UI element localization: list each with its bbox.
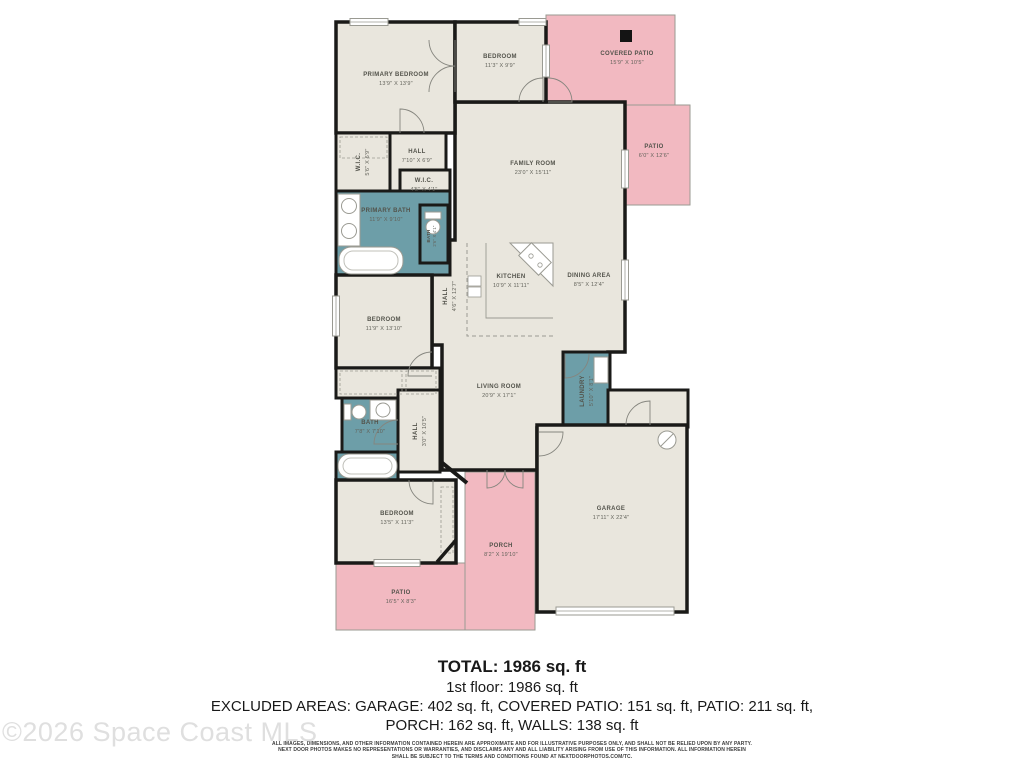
floorplan-page: COVERED PATIO15'9" X 10'5"PATIO6'0" X 12…	[0, 0, 1024, 768]
room-patio-2	[336, 563, 465, 630]
svg-text:8'2" X 19'10": 8'2" X 19'10"	[484, 552, 518, 558]
svg-text:23'0" X 15'11": 23'0" X 15'11"	[515, 170, 552, 176]
svg-text:7'8" X 7'10": 7'8" X 7'10"	[355, 429, 385, 435]
watermark: ©2026 Space Coast MLS	[2, 717, 318, 748]
svg-text:13'5" X 11'3": 13'5" X 11'3"	[380, 520, 413, 526]
svg-text:GARAGE: GARAGE	[597, 506, 625, 512]
svg-text:11'3" X 9'9": 11'3" X 9'9"	[485, 63, 515, 69]
floorplan-svg: COVERED PATIO15'9" X 10'5"PATIO6'0" X 12…	[0, 0, 1024, 768]
room-hall-2	[398, 390, 440, 472]
first-floor-area: 1st floor: 1986 sq. ft	[0, 679, 1024, 696]
total-area: TOTAL: 1986 sq. ft	[0, 657, 1024, 677]
svg-text:6'0" X 12'6": 6'0" X 12'6"	[639, 153, 669, 159]
room-porch	[465, 472, 535, 630]
svg-text:4'6" X 12'7": 4'6" X 12'7"	[452, 281, 458, 311]
svg-text:PORCH: PORCH	[489, 543, 512, 549]
svg-text:15'9" X 10'5": 15'9" X 10'5"	[610, 60, 644, 66]
svg-text:HALL: HALL	[408, 149, 425, 155]
sink	[342, 199, 357, 214]
room-bedroom-2	[455, 22, 546, 102]
svg-text:PRIMARY BATH: PRIMARY BATH	[361, 208, 410, 214]
patio-marker	[620, 30, 632, 42]
svg-text:BEDROOM: BEDROOM	[367, 317, 401, 323]
svg-text:KITCHEN: KITCHEN	[496, 274, 525, 280]
svg-text:11'9" X 13'10": 11'9" X 13'10"	[366, 326, 403, 332]
svg-text:5'6" X 6'9": 5'6" X 6'9"	[365, 148, 371, 175]
svg-text:BEDROOM: BEDROOM	[380, 511, 414, 517]
svg-text:16'5" X 8'3": 16'5" X 8'3"	[386, 599, 416, 605]
svg-text:DINING AREA: DINING AREA	[567, 273, 611, 279]
svg-text:3'0" X 10'5": 3'0" X 10'5"	[422, 416, 428, 446]
svg-text:BATH: BATH	[361, 420, 379, 426]
svg-text:10'9" X 11'11": 10'9" X 11'11"	[493, 283, 529, 289]
svg-text:7'10" X 6'9": 7'10" X 6'9"	[402, 158, 432, 164]
svg-text:LIVING ROOM: LIVING ROOM	[477, 384, 521, 390]
toilet	[352, 405, 366, 419]
svg-text:HALL: HALL	[413, 422, 419, 439]
svg-text:5'10" X 8'1": 5'10" X 8'1"	[589, 376, 595, 406]
toilet-tank	[425, 212, 441, 219]
svg-text:8'5" X 12'4": 8'5" X 12'4"	[574, 282, 604, 288]
kitchen-sink	[468, 287, 481, 297]
svg-text:PRIMARY BEDROOM: PRIMARY BEDROOM	[363, 72, 429, 78]
svg-text:2'6" X 4'1": 2'6" X 4'1"	[432, 225, 437, 247]
svg-text:PATIO: PATIO	[644, 144, 663, 150]
svg-text:BEDROOM: BEDROOM	[483, 54, 517, 60]
room-entry-vestibule	[608, 390, 688, 427]
washer-dryer	[594, 357, 608, 383]
svg-text:4'5" X 4'1": 4'5" X 4'1"	[410, 187, 437, 193]
svg-text:11'9" X 9'10": 11'9" X 9'10"	[369, 217, 402, 223]
svg-text:FAMILY ROOM: FAMILY ROOM	[510, 161, 556, 167]
svg-text:BATH: BATH	[426, 230, 431, 243]
toilet-tank	[344, 404, 351, 420]
room-wic	[336, 133, 390, 191]
svg-text:COVERED PATIO: COVERED PATIO	[600, 51, 653, 57]
svg-text:20'9" X 17'1": 20'9" X 17'1"	[482, 393, 516, 399]
kitchen-sink	[468, 276, 481, 286]
svg-text:PATIO: PATIO	[391, 590, 410, 596]
svg-text:13'9" X 13'9": 13'9" X 13'9"	[379, 81, 413, 87]
disclaimer-line-3: SHALL BE SUBJECT TO THE TERMS AND CONDIT…	[0, 754, 1024, 760]
excluded-areas-line-1: EXCLUDED AREAS: GARAGE: 402 sq. ft, COVE…	[0, 698, 1024, 715]
svg-text:17'11" X 22'4": 17'11" X 22'4"	[593, 515, 630, 521]
sink	[342, 224, 357, 239]
svg-text:LAUNDRY: LAUNDRY	[580, 375, 586, 407]
svg-text:HALL: HALL	[443, 287, 449, 304]
svg-text:W.I.C.: W.I.C.	[356, 153, 362, 171]
svg-text:W.I.C.: W.I.C.	[415, 178, 433, 184]
